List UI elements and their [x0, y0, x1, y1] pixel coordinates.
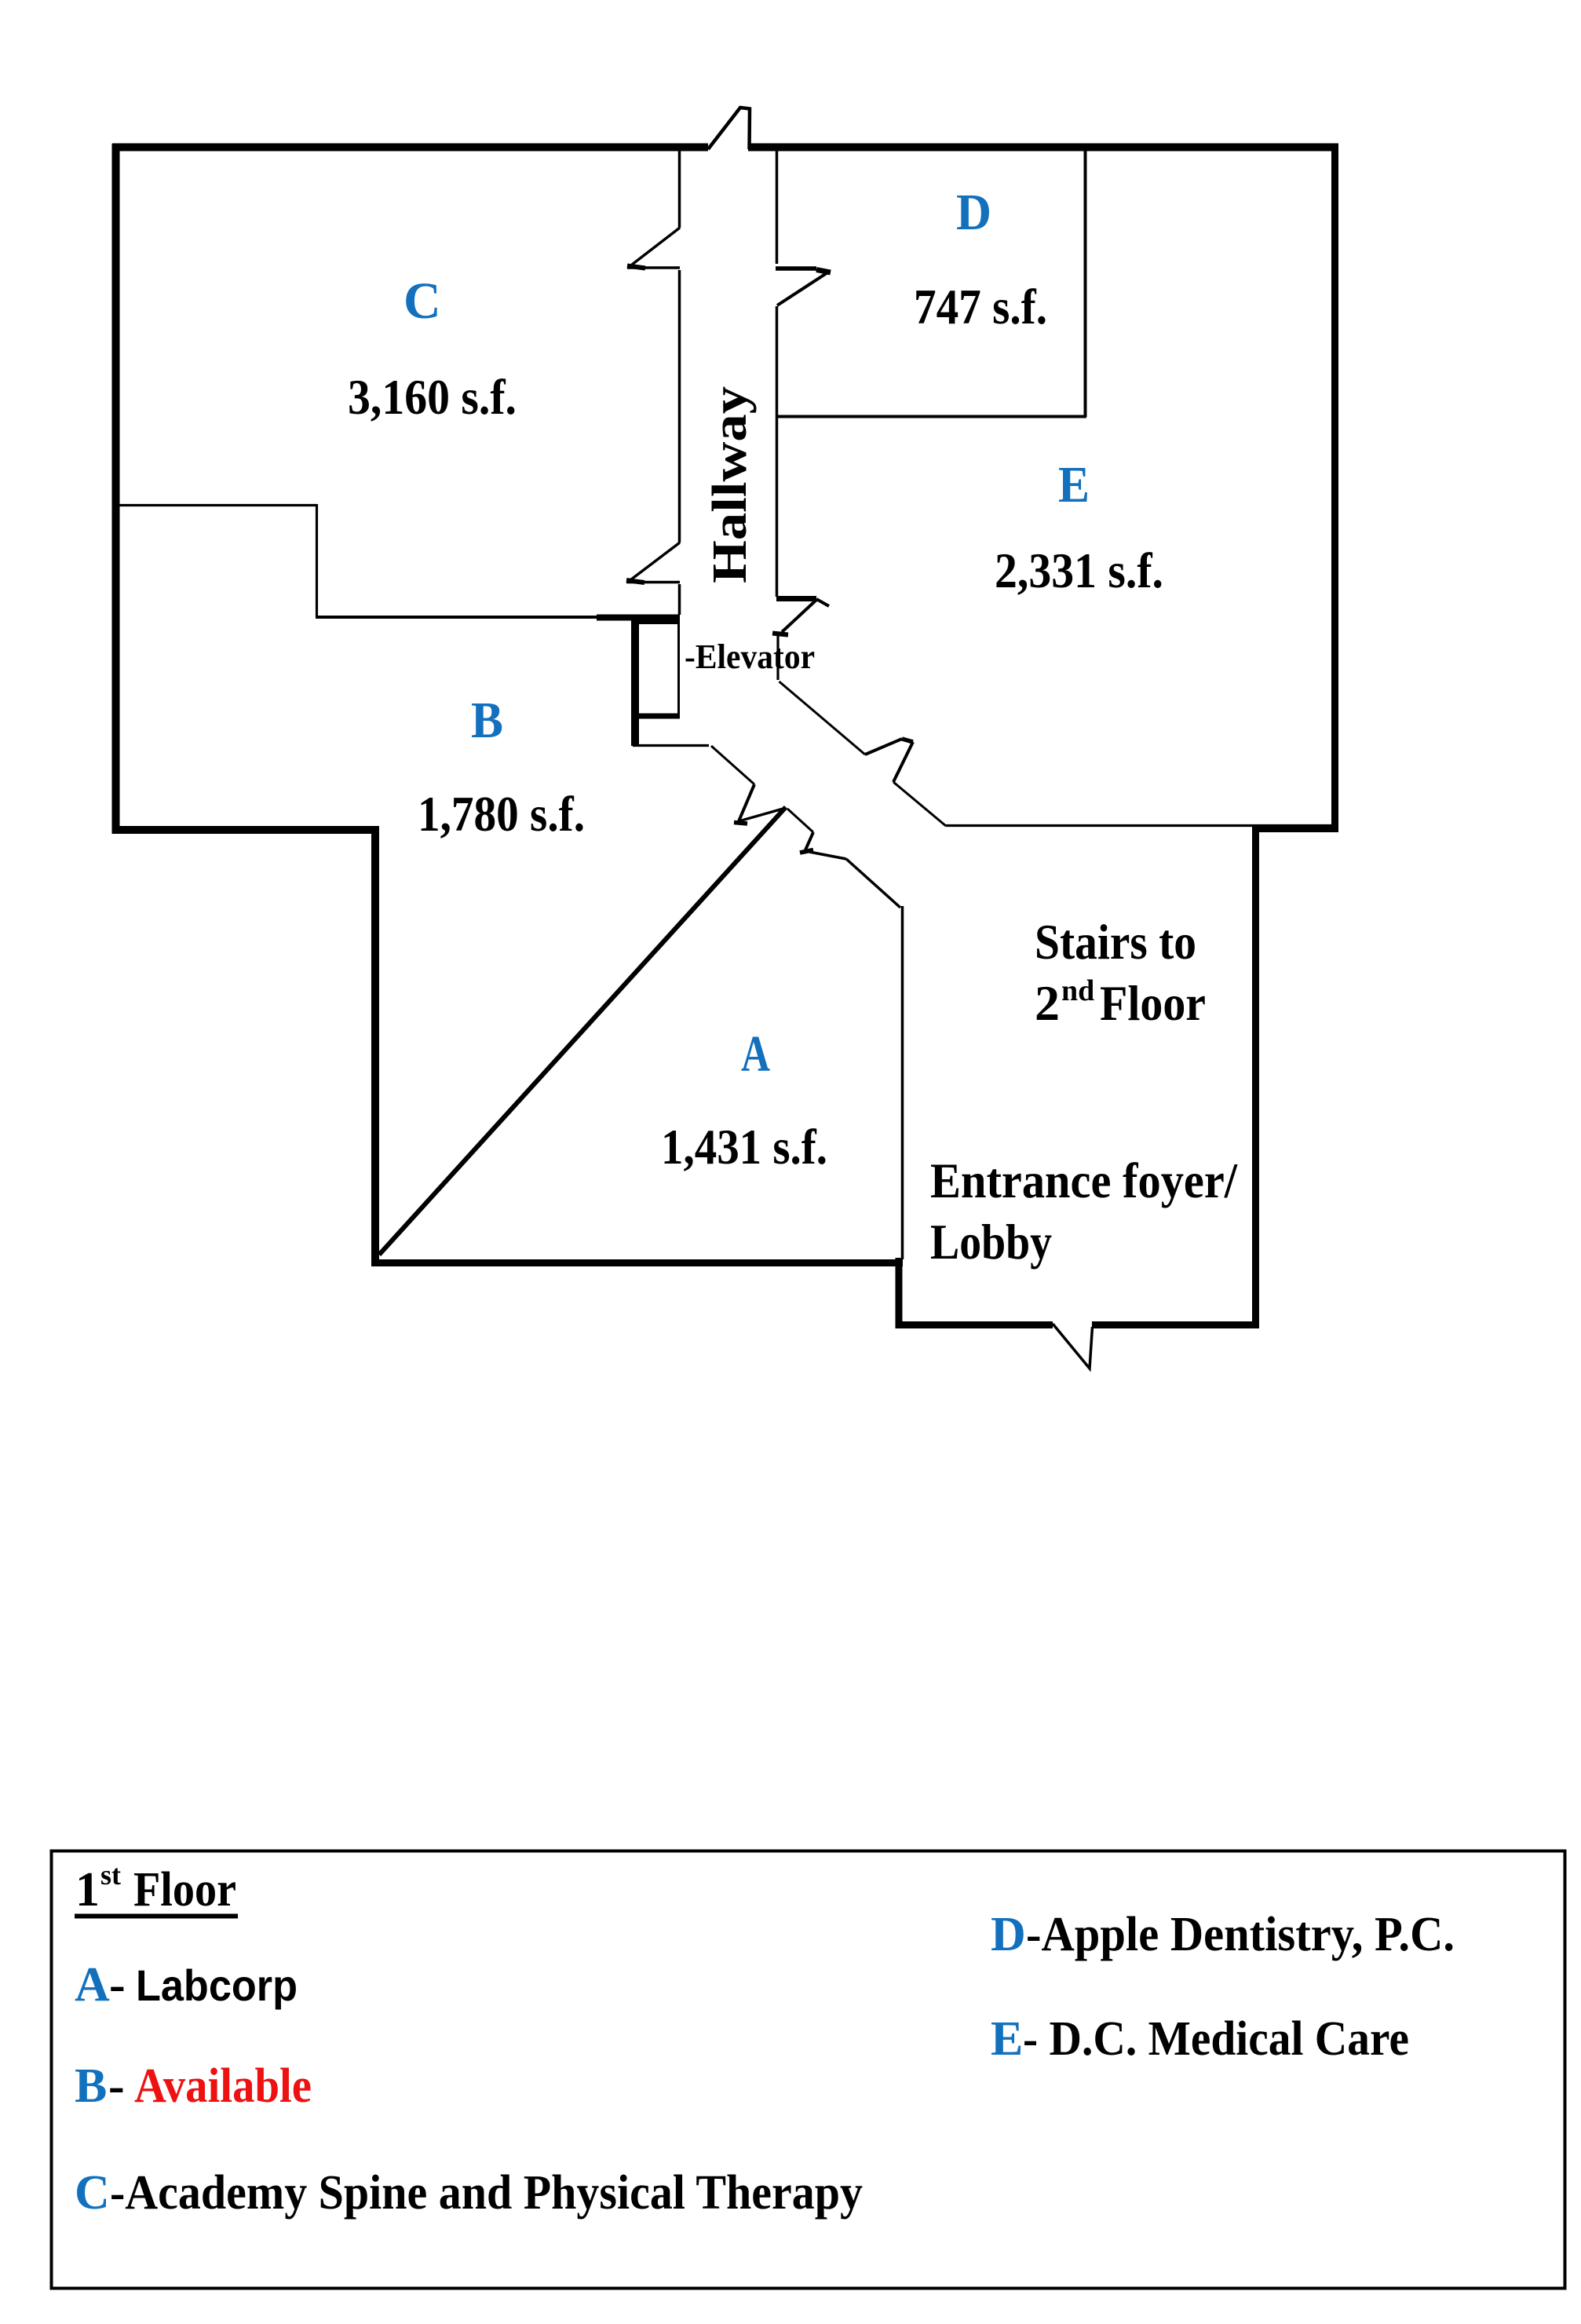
svg-text:- D.C. Medical Care: - D.C. Medical Care: [1023, 2012, 1409, 2066]
svg-text:C: C: [75, 2166, 110, 2220]
svg-text:Floor: Floor: [1100, 975, 1206, 1031]
svg-text:Entrance foyer/: Entrance foyer/: [930, 1153, 1238, 1208]
svg-text:B: B: [471, 692, 503, 749]
svg-text:1,780 s.f.: 1,780 s.f.: [418, 786, 585, 842]
svg-text:C: C: [403, 272, 441, 330]
svg-text:-Academy Spine and Physical Th: -Academy Spine and Physical Therapy: [110, 2166, 863, 2220]
svg-text:D: D: [956, 184, 991, 241]
svg-text:1: 1: [75, 1863, 100, 1917]
svg-text:A: A: [75, 1958, 110, 2012]
svg-text:B: B: [75, 2059, 107, 2113]
svg-text:Stairs to: Stairs to: [1035, 914, 1196, 970]
svg-text:Labcorp: Labcorp: [136, 1960, 298, 2010]
svg-text:-Elevator: -Elevator: [685, 638, 815, 676]
svg-text:-Apple Dentistry, P.C.: -Apple Dentistry, P.C.: [1026, 1908, 1455, 1961]
svg-text:3,160 s.f.: 3,160 s.f.: [348, 369, 517, 425]
svg-text:1,431 s.f.: 1,431 s.f.: [661, 1119, 827, 1175]
svg-text:nd: nd: [1061, 974, 1094, 1007]
svg-text:2,331 s.f.: 2,331 s.f.: [995, 543, 1163, 598]
svg-text:E: E: [1058, 456, 1090, 513]
svg-text:-: -: [108, 2059, 125, 2113]
svg-text:D: D: [991, 1908, 1026, 1961]
svg-text:747 s.f.: 747 s.f.: [914, 279, 1047, 334]
svg-text:Available: Available: [134, 2059, 312, 2113]
svg-text:-: -: [109, 1958, 126, 2012]
svg-text:Lobby: Lobby: [930, 1214, 1052, 1270]
svg-text:E: E: [991, 2012, 1023, 2066]
svg-text:A: A: [741, 1025, 770, 1083]
svg-text:Hallway: Hallway: [703, 386, 757, 583]
svg-text:Floor: Floor: [133, 1863, 236, 1917]
svg-text:st: st: [100, 1859, 121, 1891]
svg-text:2: 2: [1035, 975, 1060, 1031]
